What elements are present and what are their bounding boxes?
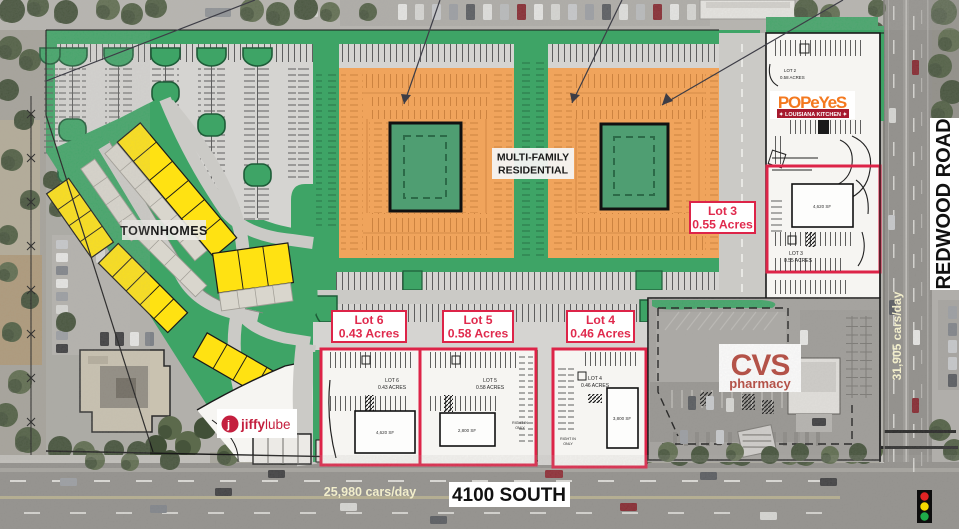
svg-text:REDWOOD ROAD: REDWOOD ROAD [933,118,955,289]
svg-text:Lot 3: Lot 3 [708,204,737,218]
svg-text:RIGHT IN: RIGHT IN [560,437,576,441]
svg-text:Lot 6: Lot 6 [354,313,383,327]
svg-text:Lot 5: Lot 5 [463,313,492,327]
svg-text:LOT 3: LOT 3 [789,251,803,257]
svg-text:31,905 cars/day: 31,905 cars/day [890,291,904,380]
svg-text:RESIDENTIAL: RESIDENTIAL [498,165,569,177]
svg-text:4,620 SF: 4,620 SF [376,430,395,435]
svg-text:3,800 SF: 3,800 SF [613,416,632,421]
svg-text:0.58 ACRES: 0.58 ACRES [476,385,505,391]
svg-text:0.55 ACRES: 0.55 ACRES [784,258,813,264]
svg-text:0.55 Acres: 0.55 Acres [692,218,753,232]
svg-text:jiffylube: jiffylube [240,417,291,432]
svg-text:LOT 6: LOT 6 [385,378,399,384]
svg-text:0.43 ACRES: 0.43 ACRES [378,385,407,391]
svg-text:MULTI-FAMILY: MULTI-FAMILY [497,152,569,164]
svg-text:j: j [226,419,230,431]
svg-text:LOT 2: LOT 2 [784,68,797,73]
svg-text:LOT 4: LOT 4 [588,376,602,382]
svg-text:ONLY: ONLY [563,442,573,446]
svg-text:ONLY: ONLY [515,426,525,430]
svg-text:Lot 4: Lot 4 [586,313,615,327]
svg-text:0.46 Acres: 0.46 Acres [570,327,631,341]
svg-text:LOT 5: LOT 5 [483,378,497,384]
svg-text:✦ LOUISIANA KITCHEN ✦: ✦ LOUISIANA KITCHEN ✦ [779,111,848,118]
svg-text:0.58 Acres: 0.58 Acres [448,327,509,341]
svg-text:4,620 SF: 4,620 SF [813,204,832,209]
svg-text:2,800 SF: 2,800 SF [458,428,477,433]
svg-text:0.58 ACRES: 0.58 ACRES [780,75,805,80]
svg-text:4100 SOUTH: 4100 SOUTH [452,485,566,506]
svg-text:RIGHT IN: RIGHT IN [512,421,528,425]
svg-text:25,980 cars/day: 25,980 cars/day [324,485,416,499]
svg-text:0.46 ACRES: 0.46 ACRES [581,383,610,389]
svg-text:0.43 Acres: 0.43 Acres [339,327,400,341]
